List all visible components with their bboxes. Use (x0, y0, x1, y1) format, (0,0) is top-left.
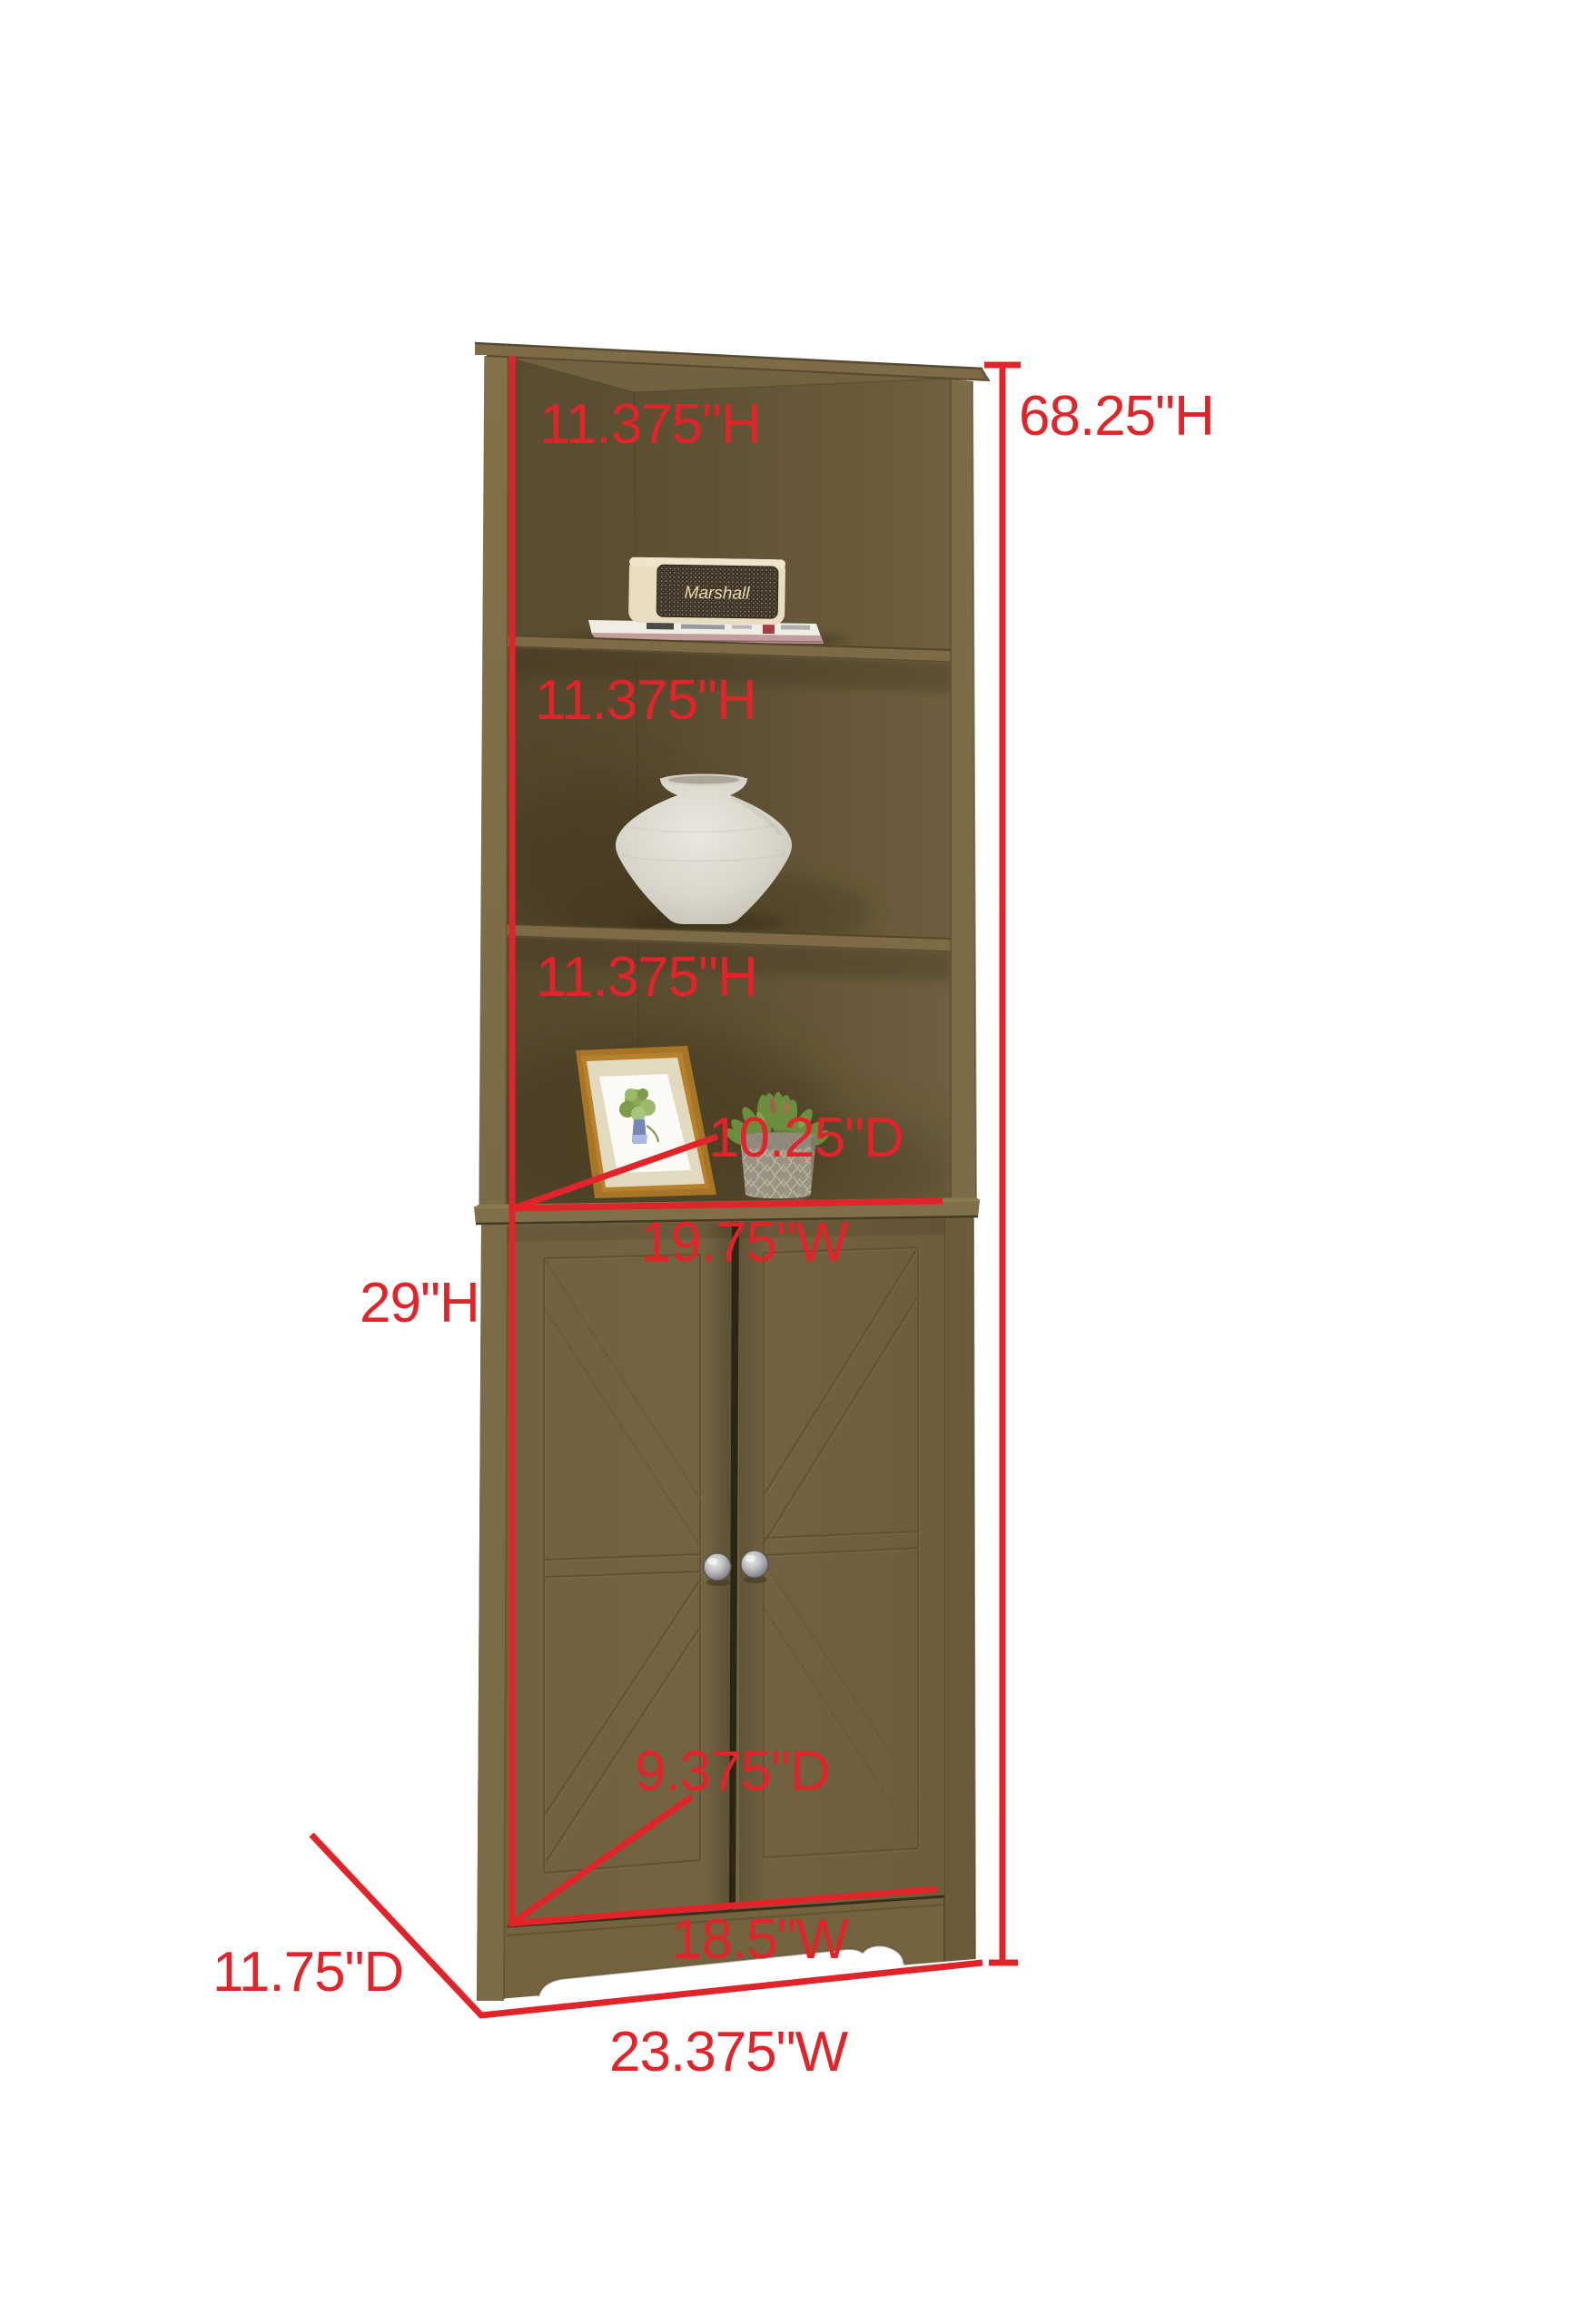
svg-text:11.75"D: 11.75"D (212, 1941, 403, 2004)
svg-text:11.375"H: 11.375"H (536, 946, 757, 1009)
svg-text:29"H: 29"H (360, 1272, 479, 1334)
svg-text:11.375"H: 11.375"H (535, 669, 756, 732)
svg-text:Marshall: Marshall (684, 584, 750, 604)
svg-text:23.375"W: 23.375"W (609, 2021, 849, 2083)
svg-text:18.5"W: 18.5"W (671, 1908, 850, 1971)
svg-text:19.75"W: 19.75"W (640, 1211, 849, 1274)
svg-text:11.375"H: 11.375"H (539, 393, 761, 456)
svg-text:10.25"D: 10.25"D (708, 1107, 903, 1169)
svg-text:68.25"H: 68.25"H (1019, 385, 1214, 448)
svg-text:9.375"D: 9.375"D (635, 1740, 830, 1803)
